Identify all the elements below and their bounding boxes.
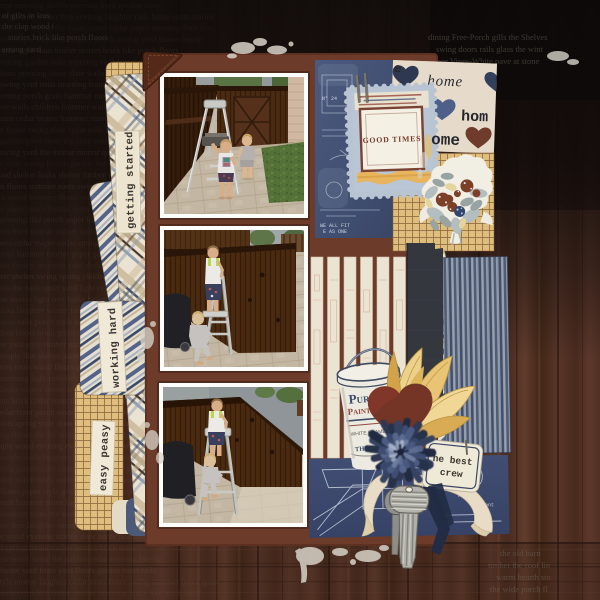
svg-text:floors paper style grain floor: floors paper style grain floors house mo…: [0, 486, 147, 496]
svg-text:N° 24: N° 24: [322, 96, 337, 102]
svg-text:hom: hom: [461, 108, 489, 126]
svg-text:e: e: [394, 61, 403, 76]
svg-text:easy peasy: easy peasy: [98, 424, 112, 492]
svg-text:the clap wood t: the clap wood t: [2, 21, 55, 31]
svg-text:timber the roof lin: timber the roof lin: [488, 560, 551, 570]
svg-text:warm hearth sto: warm hearth sto: [496, 572, 551, 582]
svg-text:erning yard: erning yard: [2, 44, 42, 54]
svg-text:ome: ome: [431, 131, 460, 150]
svg-text:house yard front yard floors g: house yard front yard floors garden root…: [0, 565, 156, 575]
svg-text:swing doors rails glass the wi: swing doors rails glass the wint: [436, 44, 544, 54]
svg-text:style mortar laughter cedar ro: style mortar laughter cedar roots fence …: [0, 576, 219, 586]
svg-text:garden children frame shelter: garden children frame shelter morning fe…: [0, 588, 200, 598]
svg-text:getting started: getting started: [124, 131, 138, 229]
svg-text:door walls stone the garden ce: door walls stone the garden cedar evenin…: [0, 554, 162, 564]
svg-text:dining Free-Porch gills the Sh: dining Free-Porch gills the Shelves: [428, 32, 547, 42]
svg-text:the old barn: the old barn: [500, 548, 541, 558]
svg-text:stories brick like porch floor: stories brick like porch floors: [8, 32, 108, 42]
svg-text:E AS ONE: E AS ONE: [320, 229, 347, 235]
svg-text:yard spring frame timber stori: yard spring frame timber stories brick s…: [0, 542, 137, 552]
svg-text:home morning shelter evening f: home morning shelter evening front garde…: [0, 0, 159, 10]
svg-text:door frame swing slate cedar r: door frame swing slate cedar rails like: [0, 124, 118, 134]
svg-text:of gilts in leas: of gilts in leas: [2, 10, 50, 20]
svg-text:the wide porch fl: the wide porch fl: [490, 584, 548, 594]
